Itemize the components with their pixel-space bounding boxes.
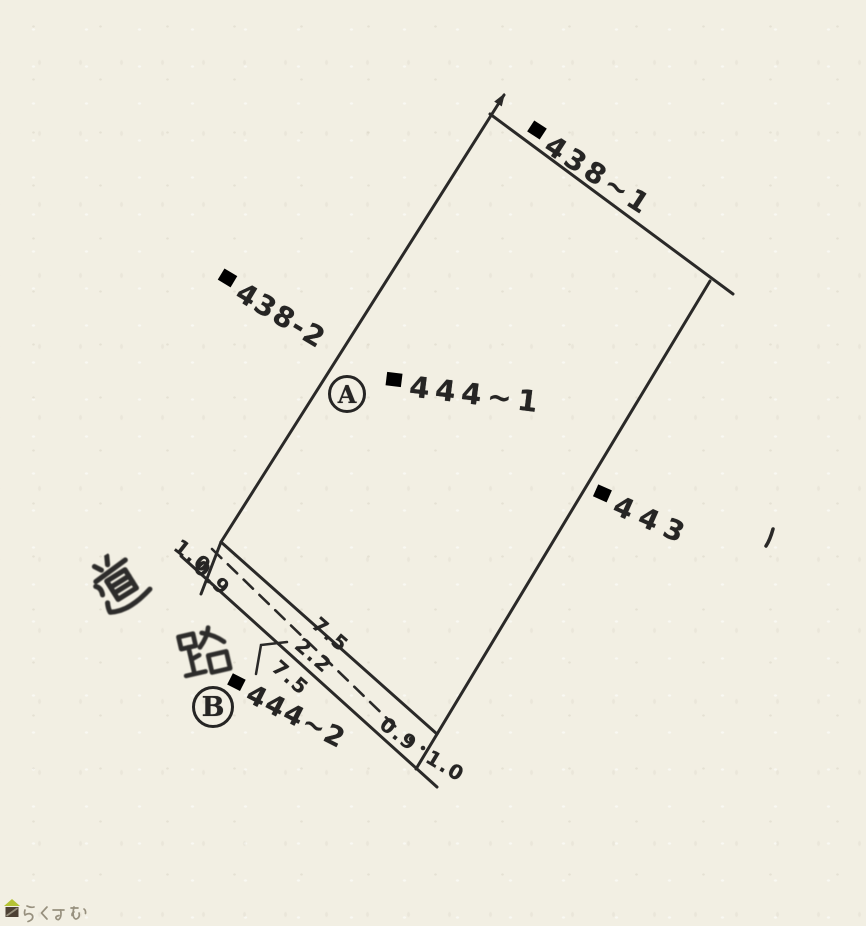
road-center-dot [421,746,426,751]
point-a-marker: A [328,375,366,413]
point-letter: A [338,380,357,409]
rakusumu-watermark [3,898,103,926]
north-arrow-head-icon [494,93,505,106]
parcel-boundary-lines [0,0,866,926]
rakusumu-logo [3,898,103,924]
kou-kanji-glyph [380,368,407,402]
rakusumu-logo-text [25,906,86,922]
survey-sketch-page: 438~1 438-2 A 444~1 443 B 444~2 [0,0,866,926]
house-icon [4,899,20,917]
stray-comma-mark [766,529,773,546]
